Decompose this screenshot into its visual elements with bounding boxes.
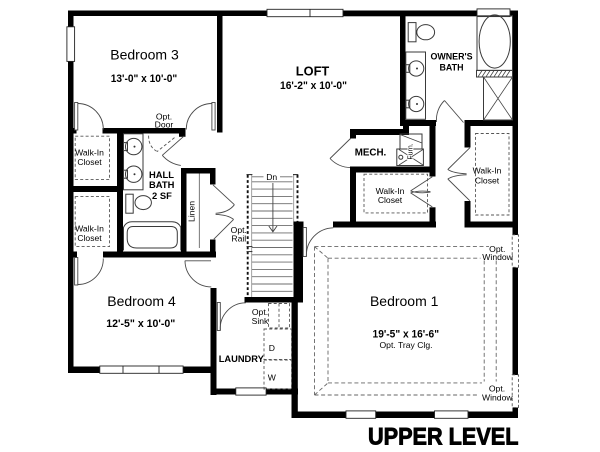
svg-text:Door: Door xyxy=(155,119,174,129)
svg-text:Closet: Closet xyxy=(77,157,102,167)
svg-text:UPPER LEVEL: UPPER LEVEL xyxy=(368,424,519,451)
svg-text:MECH.: MECH. xyxy=(355,147,387,158)
svg-text:19'-5" x 16'-6": 19'-5" x 16'-6" xyxy=(373,329,440,341)
svg-text:Closet: Closet xyxy=(475,175,500,185)
svg-text:Rail: Rail xyxy=(231,233,246,243)
svg-text:Walk-In: Walk-In xyxy=(473,165,502,175)
svg-text:LOFT: LOFT xyxy=(296,63,330,78)
svg-text:LAUNDRY: LAUNDRY xyxy=(219,354,265,364)
svg-text:Bedroom 3: Bedroom 3 xyxy=(110,47,179,63)
svg-text:Furn.: Furn. xyxy=(408,143,415,159)
svg-text:Closet: Closet xyxy=(77,233,102,243)
svg-text:OWNER'S: OWNER'S xyxy=(430,52,472,62)
svg-text:D: D xyxy=(269,343,275,353)
svg-text:Window: Window xyxy=(482,252,513,262)
svg-text:Bedroom 1: Bedroom 1 xyxy=(370,293,439,309)
svg-text:13'-0" x 10'-0": 13'-0" x 10'-0" xyxy=(111,73,178,85)
svg-text:Linen: Linen xyxy=(187,201,197,222)
svg-text:Walk-In: Walk-In xyxy=(75,224,104,234)
svg-text:Window: Window xyxy=(482,393,513,403)
svg-text:Bedroom 4: Bedroom 4 xyxy=(107,293,176,309)
svg-text:12'-5" x 10'-0": 12'-5" x 10'-0" xyxy=(106,318,175,330)
svg-text:BATH: BATH xyxy=(149,179,175,190)
svg-text:2 SF: 2 SF xyxy=(152,190,172,201)
svg-text:W: W xyxy=(268,373,277,383)
svg-text:Dn: Dn xyxy=(266,172,277,182)
svg-text:Closet: Closet xyxy=(378,195,403,205)
svg-text:Walk-In: Walk-In xyxy=(75,148,104,158)
svg-text:16'-2" x 10'-0": 16'-2" x 10'-0" xyxy=(280,80,347,92)
svg-text:Sink: Sink xyxy=(252,316,269,326)
svg-text:Opt. Tray Clg.: Opt. Tray Clg. xyxy=(379,340,432,350)
svg-text:BATH: BATH xyxy=(440,63,464,73)
